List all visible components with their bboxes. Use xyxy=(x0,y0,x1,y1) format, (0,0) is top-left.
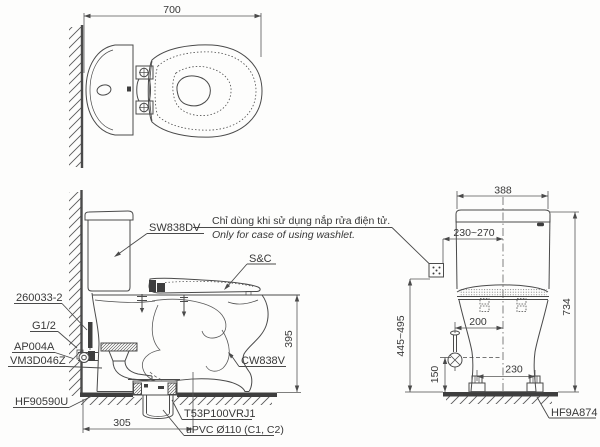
plan-view xyxy=(69,13,262,168)
rear-stop-valve xyxy=(448,331,502,371)
water-spot xyxy=(177,76,210,106)
floor-line xyxy=(177,393,277,398)
label-bolt-set: HF9A874 xyxy=(551,407,597,419)
dim-arrow-icon xyxy=(443,358,447,365)
drawing-canvas: 700 305 395 388 230~270 734 445~495 200 … xyxy=(0,0,600,447)
dim-arrow-icon xyxy=(542,194,549,198)
dim-overall-height-text: 734 xyxy=(561,298,573,316)
dim-top-width xyxy=(84,13,261,73)
dim-rough-in-text: 305 xyxy=(113,417,131,429)
wall-hatch xyxy=(69,27,82,167)
dim-valve-height xyxy=(440,358,451,393)
dim-arrow-icon xyxy=(83,427,90,431)
dim-arrow-icon xyxy=(529,374,536,378)
side-tank xyxy=(85,211,133,291)
drain-socket xyxy=(128,380,180,396)
dim-arrow-icon xyxy=(295,295,299,302)
wall-hatch xyxy=(69,192,81,396)
dim-rear-width-text: 388 xyxy=(494,185,512,197)
label-bowl: CW838V xyxy=(241,355,286,367)
toilet-installation-drawing: 700 305 395 388 230~270 734 445~495 200 … xyxy=(0,0,600,447)
dim-arrow-icon xyxy=(477,374,484,378)
dim-arrow-icon xyxy=(408,279,412,286)
dim-washlet-range-text: 230~270 xyxy=(453,227,494,239)
label-stop-valve: AP004A xyxy=(14,341,55,353)
washlet-note-vi: Chỉ dùng khi sử dụng nắp rửa điện tử. xyxy=(212,214,390,227)
note-leader xyxy=(392,228,429,264)
dim-arrow-icon xyxy=(255,14,262,18)
dim-washlet-range xyxy=(443,237,503,264)
stop-valve xyxy=(79,353,89,363)
label-tank: SW838DV xyxy=(149,222,201,234)
label-drain-socket: T53P100VRJ1 xyxy=(184,408,256,420)
label-floor-flange: HF90590U xyxy=(15,396,68,408)
dim-arrow-icon xyxy=(497,237,504,241)
floor-line xyxy=(443,392,558,397)
dim-rim-height-text: 395 xyxy=(283,330,295,348)
dim-arrow-icon xyxy=(408,386,412,393)
dim-arrow-icon xyxy=(443,386,447,393)
dim-top-width-text: 700 xyxy=(163,4,181,16)
dim-arrow-icon xyxy=(573,386,577,393)
dim-supply-height xyxy=(408,279,430,392)
label-flush-valve: VM3D046Z xyxy=(10,355,66,367)
label-seat-cover: S&C xyxy=(249,253,272,265)
label-drain-pipe: uPVC Ø110 (C1, C2) xyxy=(186,424,284,436)
dim-arrow-icon xyxy=(573,212,577,219)
floor-hatch xyxy=(446,397,552,405)
dim-arrow-icon xyxy=(84,14,91,18)
floor-line xyxy=(80,393,133,398)
dim-valve-height-text: 150 xyxy=(429,366,441,384)
floor-hatch xyxy=(81,397,142,405)
label-tank-bolt: 260033-2 xyxy=(16,292,63,304)
floor-hatch xyxy=(174,397,272,405)
dim-arrow-icon xyxy=(455,326,462,330)
dim-arrow-icon xyxy=(497,326,504,330)
tank-bolt xyxy=(88,322,93,348)
label-supply-thread: G1/2 xyxy=(32,320,56,332)
dim-supply-height-text: 445~495 xyxy=(395,315,407,356)
plan-bowl-seat xyxy=(148,45,262,137)
dim-supply-offset-text: 200 xyxy=(469,316,487,328)
dim-bolt-pitch-text: 230 xyxy=(505,364,523,376)
dim-arrow-icon xyxy=(295,386,299,393)
washlet-note-en: Only for case of using washlet. xyxy=(212,229,355,241)
leader-arrow-icon xyxy=(114,251,121,257)
dim-arrow-icon xyxy=(443,237,450,241)
washlet-control-box xyxy=(429,264,444,278)
plan-tank xyxy=(86,45,133,135)
brand-logo xyxy=(537,223,544,226)
dim-arrow-icon xyxy=(457,194,464,198)
flush-button xyxy=(96,84,112,97)
